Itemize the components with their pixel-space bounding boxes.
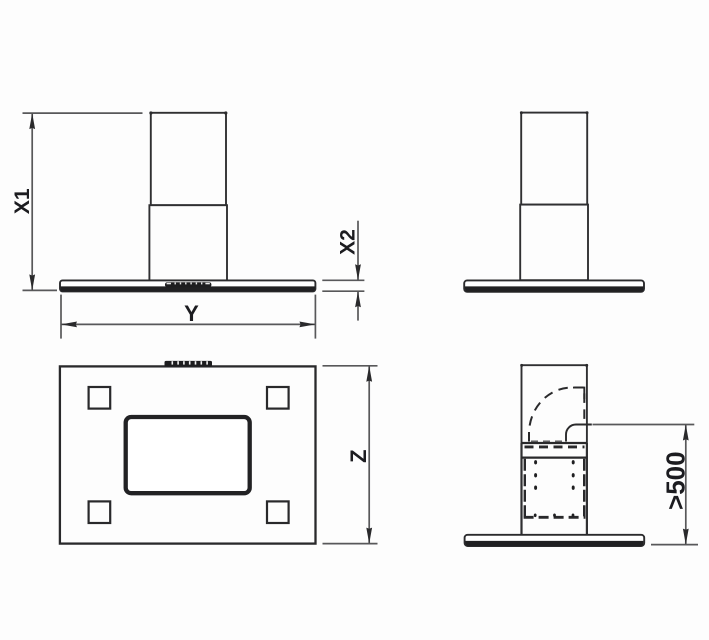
svg-text:Z: Z <box>346 449 371 462</box>
svg-text:X2: X2 <box>337 229 360 255</box>
svg-text:Y: Y <box>184 301 199 326</box>
svg-text:>500: >500 <box>660 451 690 510</box>
svg-text:X1: X1 <box>11 188 34 214</box>
